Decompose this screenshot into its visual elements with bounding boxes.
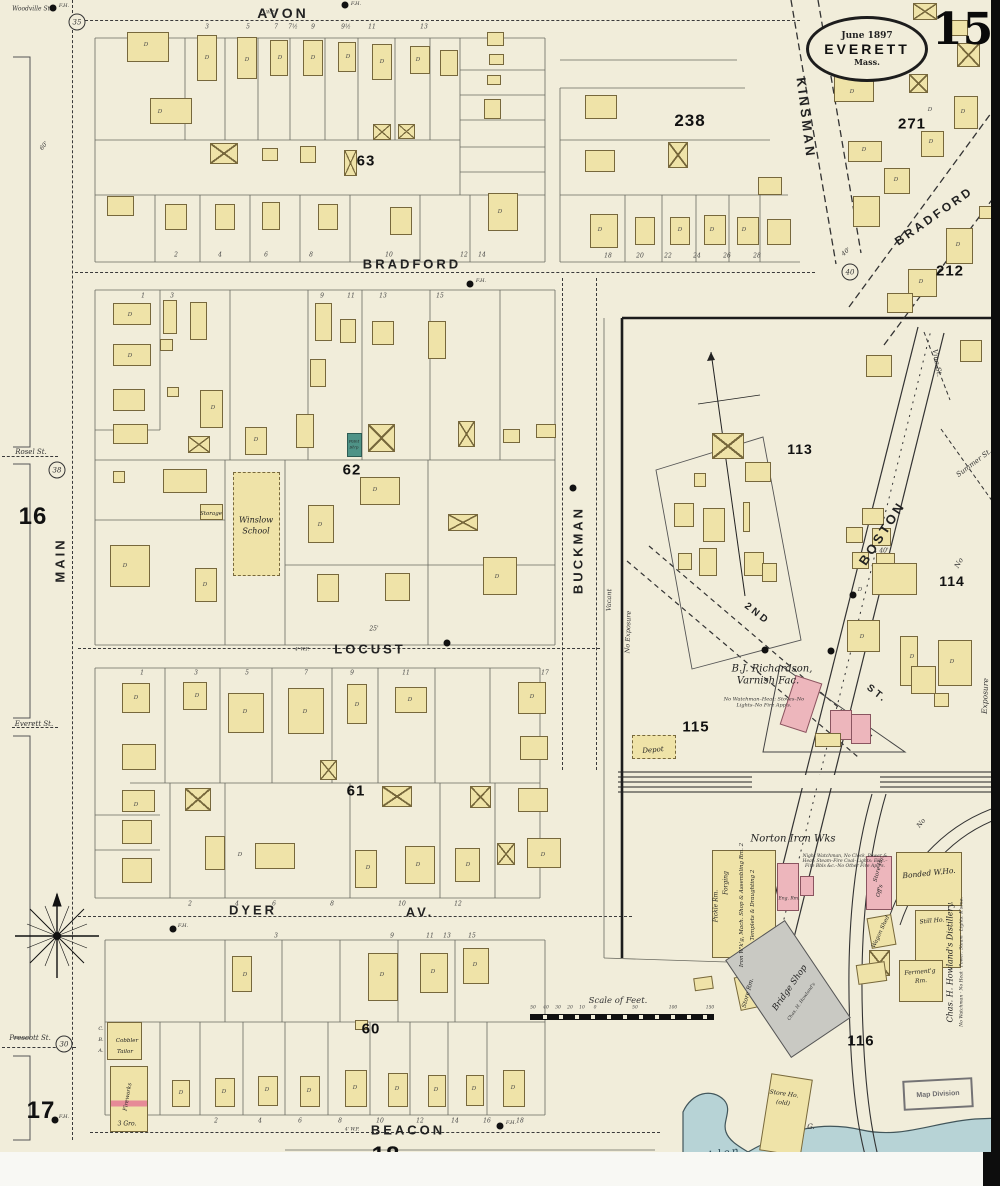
dwelling-mark: D [158, 109, 162, 115]
badge-date: June 1897 [841, 31, 892, 41]
map-label: 11 [347, 293, 355, 300]
dwelling-mark: D [928, 107, 932, 113]
map-label: 271 [898, 116, 926, 133]
building [909, 74, 928, 93]
building [310, 359, 326, 387]
sheet-number: 15 [932, 4, 993, 55]
map-label: C. [98, 1026, 103, 1032]
map-label: 9 [311, 24, 315, 31]
map-label: 12 [460, 252, 468, 259]
dwelling-mark: D [956, 242, 960, 248]
dwelling-mark: D [742, 227, 746, 233]
building [382, 786, 412, 807]
building [317, 574, 339, 602]
dwelling-mark: D [243, 972, 247, 978]
building [458, 421, 475, 447]
map-label: 9 [320, 293, 324, 300]
map-label: 13 [379, 293, 387, 300]
dwelling-mark: D [434, 1087, 438, 1093]
map-label: Sh'p [350, 445, 359, 450]
building [113, 389, 145, 411]
dwelling-mark: D [910, 654, 914, 660]
dwelling-mark: D [498, 209, 502, 215]
building [296, 414, 314, 448]
map-label: G. [807, 1123, 815, 1131]
map-label: 24 [693, 253, 701, 260]
fire-hydrant-dot [444, 640, 451, 647]
map-label: 63 [357, 153, 376, 170]
map-label: Templets & Draughting 2 [750, 870, 756, 941]
building [440, 50, 458, 76]
fire-hydrant-dot [828, 648, 835, 655]
map-label: 28 [753, 253, 761, 260]
dwelling-mark: D [144, 42, 148, 48]
map-label: 1 [141, 293, 145, 300]
circled-number: 35 [69, 14, 86, 31]
map-label: 9 [350, 670, 354, 677]
map-label: Cobbler [116, 1038, 138, 1044]
map-label: 4 [258, 1118, 262, 1125]
map-label: Chas. H. Howland's Distillery. [946, 902, 955, 1023]
building [344, 150, 357, 176]
building [487, 32, 504, 46]
dwelling-mark: D [254, 437, 258, 443]
map-label: No Watchman–Heat: Stoves–No Lights–No Fi… [720, 697, 808, 709]
building [107, 196, 134, 216]
dwelling-mark: D [179, 1090, 183, 1096]
dwelling-mark: D [353, 1085, 357, 1091]
building [320, 760, 337, 780]
building [853, 196, 880, 227]
dwelling-mark: D [395, 1086, 399, 1092]
building [113, 424, 148, 444]
building [703, 508, 725, 542]
dwelling-mark: D [346, 54, 350, 60]
building [497, 843, 515, 865]
building [113, 471, 125, 483]
building [585, 95, 617, 119]
dwelling-mark: D [128, 312, 132, 318]
building [385, 573, 410, 601]
building [262, 148, 278, 161]
map-label: 150 [706, 1006, 715, 1011]
dwelling-mark: D [858, 587, 862, 593]
map-label: 20 [636, 253, 644, 260]
dwelling-mark: D [245, 57, 249, 63]
map-label: 15 [436, 293, 444, 300]
map-label: 50 [632, 1006, 638, 1011]
building [762, 563, 777, 582]
map-label: Rm. [915, 977, 928, 985]
building [699, 548, 717, 576]
building [163, 469, 207, 493]
dwelling-mark: D [355, 702, 359, 708]
map-label: 8 [338, 1118, 342, 1125]
map-label: 14 [478, 252, 486, 259]
fire-hydrant-dot [170, 926, 177, 933]
building [693, 976, 714, 992]
map-label: 4' W.P. [345, 1128, 359, 1133]
dwelling-mark: D [495, 574, 499, 580]
scale-bar [530, 1014, 714, 1020]
building [315, 303, 332, 341]
map-label: G.W.P. [261, 11, 275, 16]
map-label: 8 [330, 901, 334, 908]
map-label: 114 [939, 573, 965, 589]
map-label: 100 [669, 1006, 678, 1011]
dwelling-mark: D [929, 139, 933, 145]
building [372, 321, 394, 345]
building [488, 193, 518, 231]
building [448, 514, 478, 531]
building [373, 124, 391, 140]
page-corner-square [983, 1152, 1000, 1186]
building [743, 502, 750, 532]
map-label: LOCUST [334, 642, 405, 657]
map-label: No Watchman · No Heat · Power: Steam · L… [959, 887, 964, 1037]
map-label: 13 [443, 933, 451, 940]
map-label: 8 [309, 252, 313, 259]
dwelling-mark: D [318, 522, 322, 528]
map-label: Tailor [117, 1049, 133, 1055]
building [165, 204, 187, 230]
building [758, 177, 782, 195]
map-label: Norton Iron Wks [750, 834, 835, 845]
building [255, 843, 295, 869]
dwelling-mark: D [961, 109, 965, 115]
map-label: 25' [369, 626, 378, 633]
dwelling-mark: D [265, 1087, 269, 1093]
map-label: 17 [541, 670, 549, 677]
building [122, 790, 155, 812]
building [635, 217, 655, 245]
dwelling-mark: D [511, 1085, 515, 1091]
map-label: 26 [723, 253, 731, 260]
building [737, 217, 759, 245]
map-label: F.H. [351, 1, 361, 7]
building [934, 693, 949, 707]
dwelling-mark: D [195, 693, 199, 699]
dwelling-mark: D [850, 89, 854, 95]
page-edge-bar [991, 0, 1000, 1152]
map-label: Everett St. [15, 720, 53, 728]
map-label: Vacant [605, 589, 614, 612]
map-label: 2 [188, 901, 192, 908]
badge-city: EVERETT [824, 41, 910, 57]
building [954, 96, 978, 129]
fire-hydrant-dot [570, 485, 577, 492]
map-division-stamp: Map Division [902, 1077, 973, 1111]
map-label: BUCKMAN [571, 506, 586, 594]
building [674, 503, 694, 527]
sanborn-map-sheet: June 1897 EVERETT Mass. 15 Map Division … [0, 0, 1000, 1186]
map-label: Prescott St. [9, 1034, 51, 1042]
map-label: B.J. Richardson, [732, 664, 813, 675]
map-label: BRADFORD [363, 257, 461, 272]
map-title-badge: June 1897 EVERETT Mass. [806, 16, 928, 82]
building [489, 54, 504, 65]
dwelling-mark: D [373, 487, 377, 493]
map-label: F.H. [59, 3, 69, 9]
building [484, 99, 501, 119]
map-label: 238 [674, 111, 705, 131]
circled-number: 30 [56, 1036, 73, 1053]
building [800, 876, 814, 896]
circled-number: 40 [842, 264, 859, 281]
building [163, 300, 177, 334]
map-label: 3 [194, 670, 198, 677]
map-label: 9½ [341, 24, 351, 31]
map-label: Paint [349, 439, 359, 444]
building [262, 202, 280, 230]
map-label: Eng. Rm. [778, 896, 799, 901]
map-label: 3 [205, 24, 209, 31]
building [210, 143, 238, 164]
building [167, 387, 179, 397]
fire-hydrant-dot [342, 2, 349, 9]
map-label: 11 [402, 670, 410, 677]
dwelling-mark: D [678, 227, 682, 233]
map-label: F.H. [476, 278, 486, 284]
dwelling-mark: D [303, 709, 307, 715]
map-label: 10 [385, 252, 393, 259]
dwelling-mark: D [860, 634, 864, 640]
building [585, 150, 615, 172]
map-label: Iron W'k'g, Mach. Shop & Assembling Rm. … [739, 843, 745, 967]
map-label: 40' [879, 548, 888, 555]
building [678, 553, 692, 570]
map-label: 20 [567, 1006, 573, 1011]
map-label: 113 [787, 441, 813, 457]
map-label: 60 [362, 1021, 381, 1038]
map-label: 4 [235, 901, 239, 908]
map-label: Pickle Rm. [713, 890, 720, 922]
map-label: 11 [368, 24, 376, 31]
dwelling-mark: D [380, 972, 384, 978]
building [390, 207, 412, 235]
map-label: AV. [406, 905, 435, 920]
dwelling-mark: D [211, 405, 215, 411]
map-label: 1 [140, 670, 144, 677]
fire-hydrant-dot [50, 5, 57, 12]
dwelling-mark: D [466, 862, 470, 868]
dwelling-mark: D [473, 962, 477, 968]
dwelling-mark: D [123, 563, 127, 569]
dwelling-mark: D [128, 353, 132, 359]
building [110, 545, 150, 587]
map-label: 115 [682, 719, 709, 736]
building [215, 204, 235, 230]
building [777, 863, 799, 911]
building [503, 429, 520, 443]
building [887, 293, 913, 313]
map-label: 15 [468, 933, 476, 940]
map-label: 212 [936, 263, 964, 280]
building [744, 552, 764, 576]
dwelling-mark: D [408, 697, 412, 703]
building [398, 124, 415, 139]
building [712, 433, 744, 459]
map-label: 30 [555, 1006, 561, 1011]
map-label: 22 [664, 253, 672, 260]
map-label: 7½ [288, 24, 298, 31]
map-label: 14 [451, 1118, 459, 1125]
map-label: 10 [376, 1118, 384, 1125]
map-label: Exposure [980, 678, 990, 714]
dwelling-mark: D [307, 1088, 311, 1094]
circled-number: 38 [49, 462, 66, 479]
map-label: 2 [174, 252, 178, 259]
building [866, 355, 892, 377]
dwelling-mark: D [416, 57, 420, 63]
map-label: 10 [579, 1006, 585, 1011]
building [360, 477, 400, 505]
stamp-text: Map Division [916, 1089, 959, 1098]
map-label: 11 [426, 933, 434, 940]
map-label: 6 [272, 901, 276, 908]
dwelling-mark: D [203, 582, 207, 588]
fire-hydrant-dot [762, 647, 769, 654]
building [846, 527, 863, 543]
map-label: 50 [530, 1006, 536, 1011]
map-label: Rosel St. [15, 448, 47, 456]
map-label: 3 [274, 933, 278, 940]
building [704, 215, 726, 245]
compass-rose-icon [15, 894, 99, 978]
building [911, 666, 936, 694]
building [536, 424, 556, 438]
dwelling-mark: D [472, 1086, 476, 1092]
building [856, 961, 888, 985]
dwelling-mark: D [380, 59, 384, 65]
dwelling-mark: D [222, 1089, 226, 1095]
dwelling-mark: D [134, 695, 138, 701]
map-label: A. [98, 1048, 103, 1054]
map-label: 10 [398, 901, 406, 908]
building [188, 436, 210, 453]
building [122, 820, 152, 844]
map-label: 13 [420, 24, 428, 31]
building [694, 473, 706, 487]
page-bottom-band [0, 1152, 1000, 1186]
building [340, 319, 356, 343]
map-label: F.H. [178, 923, 188, 929]
dwelling-mark: D [278, 55, 282, 61]
building [767, 219, 791, 245]
map-label: School [242, 527, 269, 536]
map-label: 12 [416, 1118, 424, 1125]
building [150, 98, 192, 124]
map-label: 62 [343, 462, 362, 479]
building [518, 788, 548, 812]
dwelling-mark: D [950, 659, 954, 665]
building [668, 142, 688, 168]
map-label: 5 [246, 24, 250, 31]
building [300, 146, 316, 163]
building [190, 302, 207, 340]
map-label: 116 [847, 1033, 874, 1050]
map-label: F.H. [59, 1114, 69, 1120]
dwelling-mark: D [530, 694, 534, 700]
map-label: 4 [218, 252, 222, 259]
fire-hydrant-dot [467, 281, 474, 288]
building [960, 340, 982, 362]
map-label: 18 [604, 253, 612, 260]
dwelling-mark: D [431, 969, 435, 975]
map-label: 18 [516, 1118, 524, 1125]
map-label: MAIN [53, 537, 68, 582]
dwelling-mark: D [598, 227, 602, 233]
building [470, 786, 491, 808]
map-label: 12 [454, 901, 462, 908]
dwelling-mark: D [134, 802, 138, 808]
map-label: 61 [347, 783, 366, 800]
fire-hydrant-dot [850, 592, 857, 599]
building [428, 321, 446, 359]
map-label: B. [98, 1037, 103, 1043]
dwelling-mark: D [710, 227, 714, 233]
dwelling-mark: D [894, 177, 898, 183]
map-label: 7 [274, 24, 278, 31]
map-label: 16 [19, 503, 48, 531]
map-label: 3 Gro. [118, 1121, 137, 1128]
map-label: Forging [723, 871, 730, 895]
building [160, 339, 173, 351]
map-label: Winslow [239, 516, 273, 525]
building [205, 836, 225, 870]
map-label: Scale of Feet. [589, 996, 648, 1006]
building [745, 462, 771, 482]
map-label: Woodville St. [12, 6, 52, 13]
railroad-label-box [752, 775, 880, 788]
building [122, 858, 152, 883]
building [938, 640, 972, 686]
map-label: 9 [390, 933, 394, 940]
map-label: 4' W.P. [295, 648, 309, 653]
building [815, 733, 841, 747]
map-label: 16 [483, 1118, 491, 1125]
dwelling-mark: D [311, 55, 315, 61]
building [318, 204, 338, 230]
building [487, 75, 501, 85]
map-label: F.H. [506, 1120, 516, 1126]
map-label: 0 [594, 1006, 597, 1011]
map-label: 2 [214, 1118, 218, 1125]
dwelling-mark: D [205, 55, 209, 61]
dwelling-mark: D [416, 862, 420, 868]
fire-hydrant-dot [52, 1117, 59, 1124]
dwelling-mark: D [862, 147, 866, 153]
map-label: Storage [200, 511, 222, 517]
dwelling-mark: D [541, 852, 545, 858]
map-label: BEACON [371, 1123, 445, 1138]
building [368, 424, 395, 452]
building [590, 214, 618, 248]
map-label: No Exposure [623, 611, 632, 654]
map-label: 6 [298, 1118, 302, 1125]
dwelling-mark: D [366, 865, 370, 871]
map-label: 40 [543, 1006, 549, 1011]
building [185, 788, 211, 811]
map-label: 7 [304, 670, 308, 677]
map-label: 3 [170, 293, 174, 300]
map-label: Varnish Fac. [737, 676, 799, 687]
building [520, 736, 548, 760]
dwelling-mark: D [243, 709, 247, 715]
building [851, 714, 871, 744]
building [122, 744, 156, 770]
fire-hydrant-dot [497, 1123, 504, 1130]
